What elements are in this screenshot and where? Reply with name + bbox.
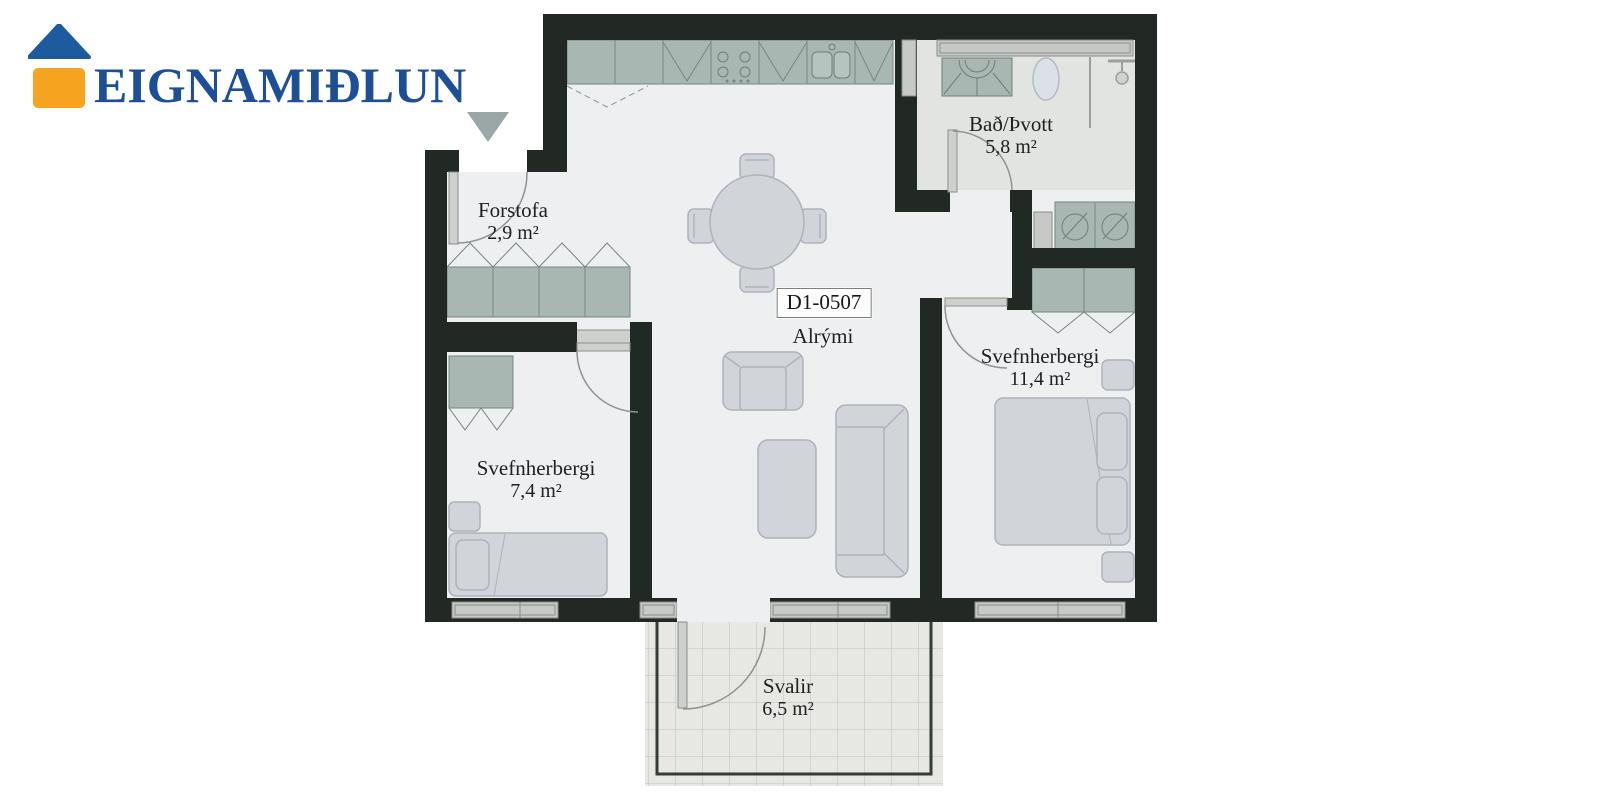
- entrance-arrow-icon: [467, 112, 509, 142]
- pillow: [1097, 413, 1127, 470]
- room-area: 11,4 m²: [981, 368, 1100, 390]
- window: [640, 602, 677, 618]
- unit-id-badge: D1-0507: [777, 288, 872, 318]
- room-label-bedroom-large: Svefnherbergi 11,4 m²: [981, 345, 1100, 390]
- wall-vent: [902, 40, 916, 96]
- pillow: [1097, 477, 1127, 534]
- room-label-alrymi: Alrými: [793, 325, 854, 348]
- bathroom-sink-icon: [942, 58, 1012, 96]
- window: [975, 602, 1125, 618]
- toilet-icon: [1033, 58, 1059, 100]
- room-name: Svefnherbergi: [477, 457, 596, 480]
- floorplan-page: EIGNAMIÐLUN: [0, 0, 1600, 804]
- pillow: [456, 540, 489, 590]
- dining-table: [710, 175, 804, 269]
- room-name: Bað/Þvott: [969, 113, 1053, 136]
- sofa: [836, 405, 908, 577]
- room-name: Forstofa: [478, 199, 548, 222]
- room-area: 5,8 m²: [969, 136, 1053, 158]
- coffee-table: [758, 440, 816, 538]
- room-area: 2,9 m²: [478, 222, 548, 244]
- room-label-bath: Bað/Þvott 5,8 m²: [969, 113, 1053, 158]
- room-area: 7,4 m²: [477, 480, 596, 502]
- nightstand: [449, 502, 480, 531]
- window: [770, 602, 890, 618]
- room-name: Alrými: [793, 325, 854, 348]
- dining-chair: [740, 266, 774, 292]
- room-label-balcony: Svalir 6,5 m²: [762, 675, 814, 720]
- balcony-doorway: [677, 598, 770, 622]
- closet-door: [1034, 212, 1052, 250]
- nightstand: [1102, 360, 1134, 390]
- room-name: Svefnherbergi: [981, 345, 1100, 368]
- window: [937, 40, 1133, 56]
- nightstand: [1102, 552, 1134, 582]
- window: [452, 602, 558, 618]
- armchair: [723, 352, 803, 410]
- room-name: Svalir: [762, 675, 814, 698]
- room-area: 6,5 m²: [762, 698, 814, 720]
- room-label-bedroom-small: Svefnherbergi 7,4 m²: [477, 457, 596, 502]
- room-label-forstofa: Forstofa 2,9 m²: [478, 199, 548, 244]
